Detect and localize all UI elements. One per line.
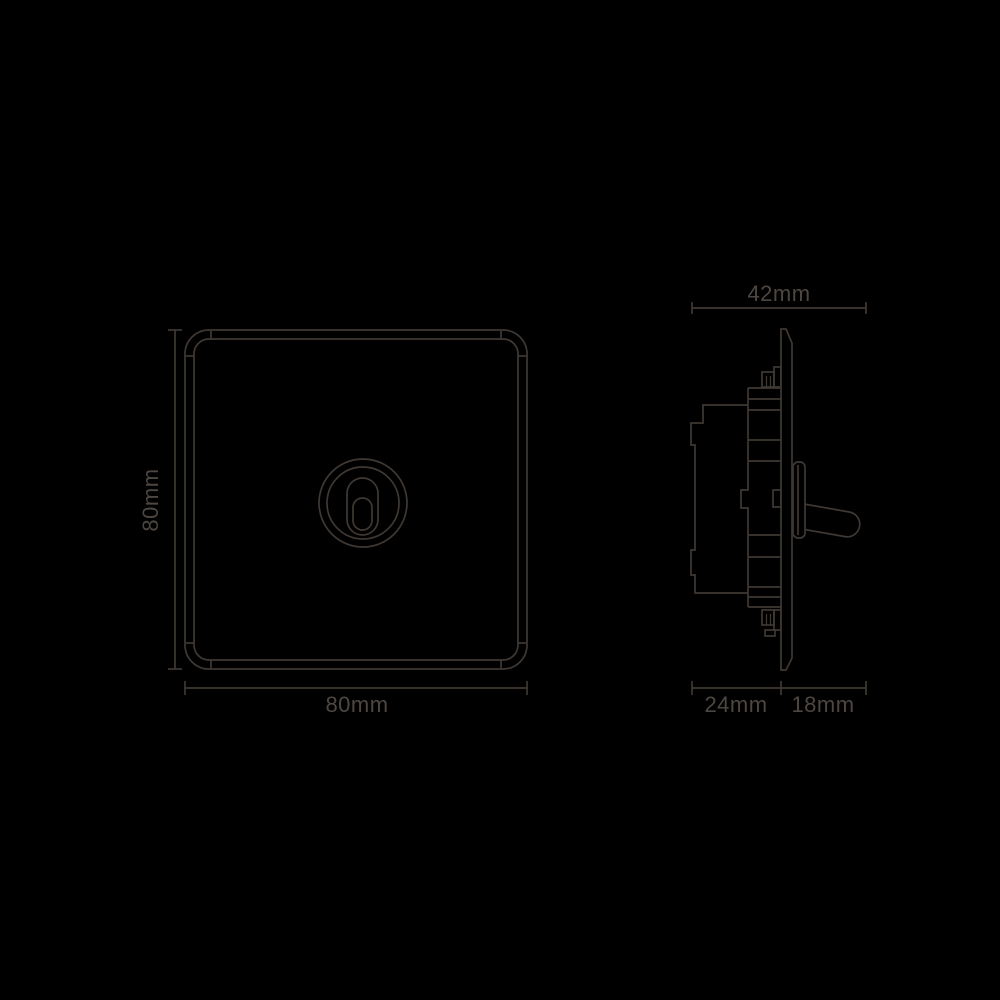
side-protrusion-label: 18mm — [791, 694, 854, 716]
front-view-drawing — [185, 330, 527, 669]
side-depth-label: 24mm — [704, 694, 767, 716]
side-yoke-stack — [741, 388, 781, 607]
front-height-dimension-line — [168, 330, 182, 669]
toggle-switch-dimension-drawing: 42mm 80mm 80mm 24mm 18mm — [0, 0, 1000, 1000]
dimension-lines — [168, 302, 866, 695]
front-height-label: 80mm — [140, 468, 162, 531]
side-bottom-terminal — [762, 610, 781, 636]
side-yoke-stack-layers — [748, 399, 781, 597]
side-pivot-detail — [773, 490, 781, 507]
toggle-lever-front-inner — [353, 498, 372, 530]
side-toggle-lever — [801, 504, 862, 539]
side-toggle-mount — [793, 462, 805, 538]
side-top-terminal — [762, 367, 781, 387]
side-view-drawing — [691, 329, 862, 670]
side-mechanism-box — [691, 405, 748, 593]
front-width-label: 80mm — [325, 694, 388, 716]
side-faceplate — [781, 329, 792, 670]
side-total-width-label: 42mm — [747, 283, 810, 305]
